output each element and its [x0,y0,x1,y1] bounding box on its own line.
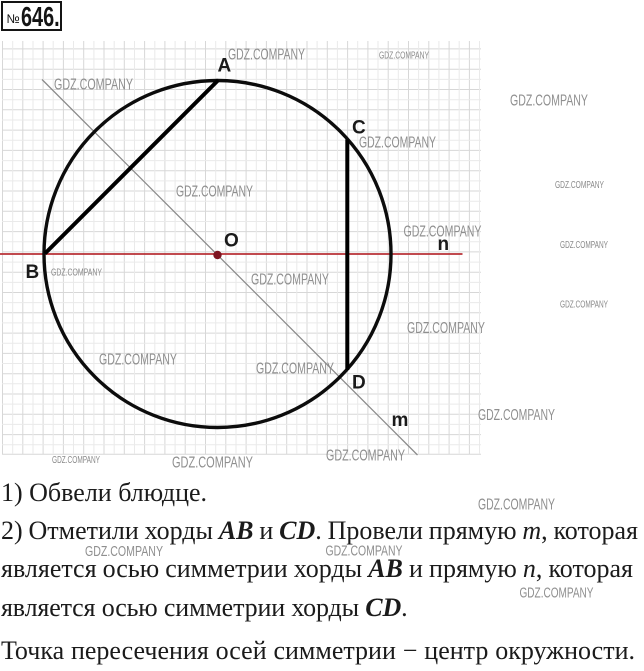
svg-text:GDZ.COMPANY: GDZ.COMPANY [99,352,177,369]
svg-text:GDZ.COMPANY: GDZ.COMPANY [560,300,608,311]
svg-text:GDZ.COMPANY: GDZ.COMPANY [379,51,429,62]
svg-text:GDZ.COMPANY: GDZ.COMPANY [407,320,485,337]
svg-text:GDZ.COMPANY: GDZ.COMPANY [555,180,604,191]
svg-text:GDZ.COMPANY: GDZ.COMPANY [176,184,253,201]
svg-text:GDZ.COMPANY: GDZ.COMPANY [560,240,608,251]
svg-text:m: m [392,410,409,431]
svg-text:GDZ.COMPANY: GDZ.COMPANY [478,497,555,514]
svg-text:B: B [26,262,40,283]
svg-text:GDZ.COMPANY: GDZ.COMPANY [256,361,334,378]
svg-text:GDZ.COMPANY: GDZ.COMPANY [52,455,100,466]
svg-text:GDZ.COMPANY: GDZ.COMPANY [228,47,305,64]
svg-text:O: O [224,231,239,252]
svg-text:D: D [352,372,366,393]
svg-text:C: C [352,118,366,139]
svg-text:GDZ.COMPANY: GDZ.COMPANY [172,455,253,472]
svg-text:GDZ.COMPANY: GDZ.COMPANY [54,77,133,94]
svg-text:GDZ.COMPANY: GDZ.COMPANY [51,268,102,279]
svg-text:GDZ.COMPANY: GDZ.COMPANY [251,272,329,289]
svg-text:n: n [438,234,450,255]
svg-text:GDZ.COMPANY: GDZ.COMPANY [510,93,588,110]
svg-text:A: A [218,56,232,77]
svg-text:GDZ.COMPANY: GDZ.COMPANY [326,448,405,465]
svg-text:GDZ.COMPANY: GDZ.COMPANY [520,585,594,602]
svg-text:GDZ.COMPANY: GDZ.COMPANY [359,135,436,152]
svg-text:GDZ.COMPANY: GDZ.COMPANY [478,407,555,424]
